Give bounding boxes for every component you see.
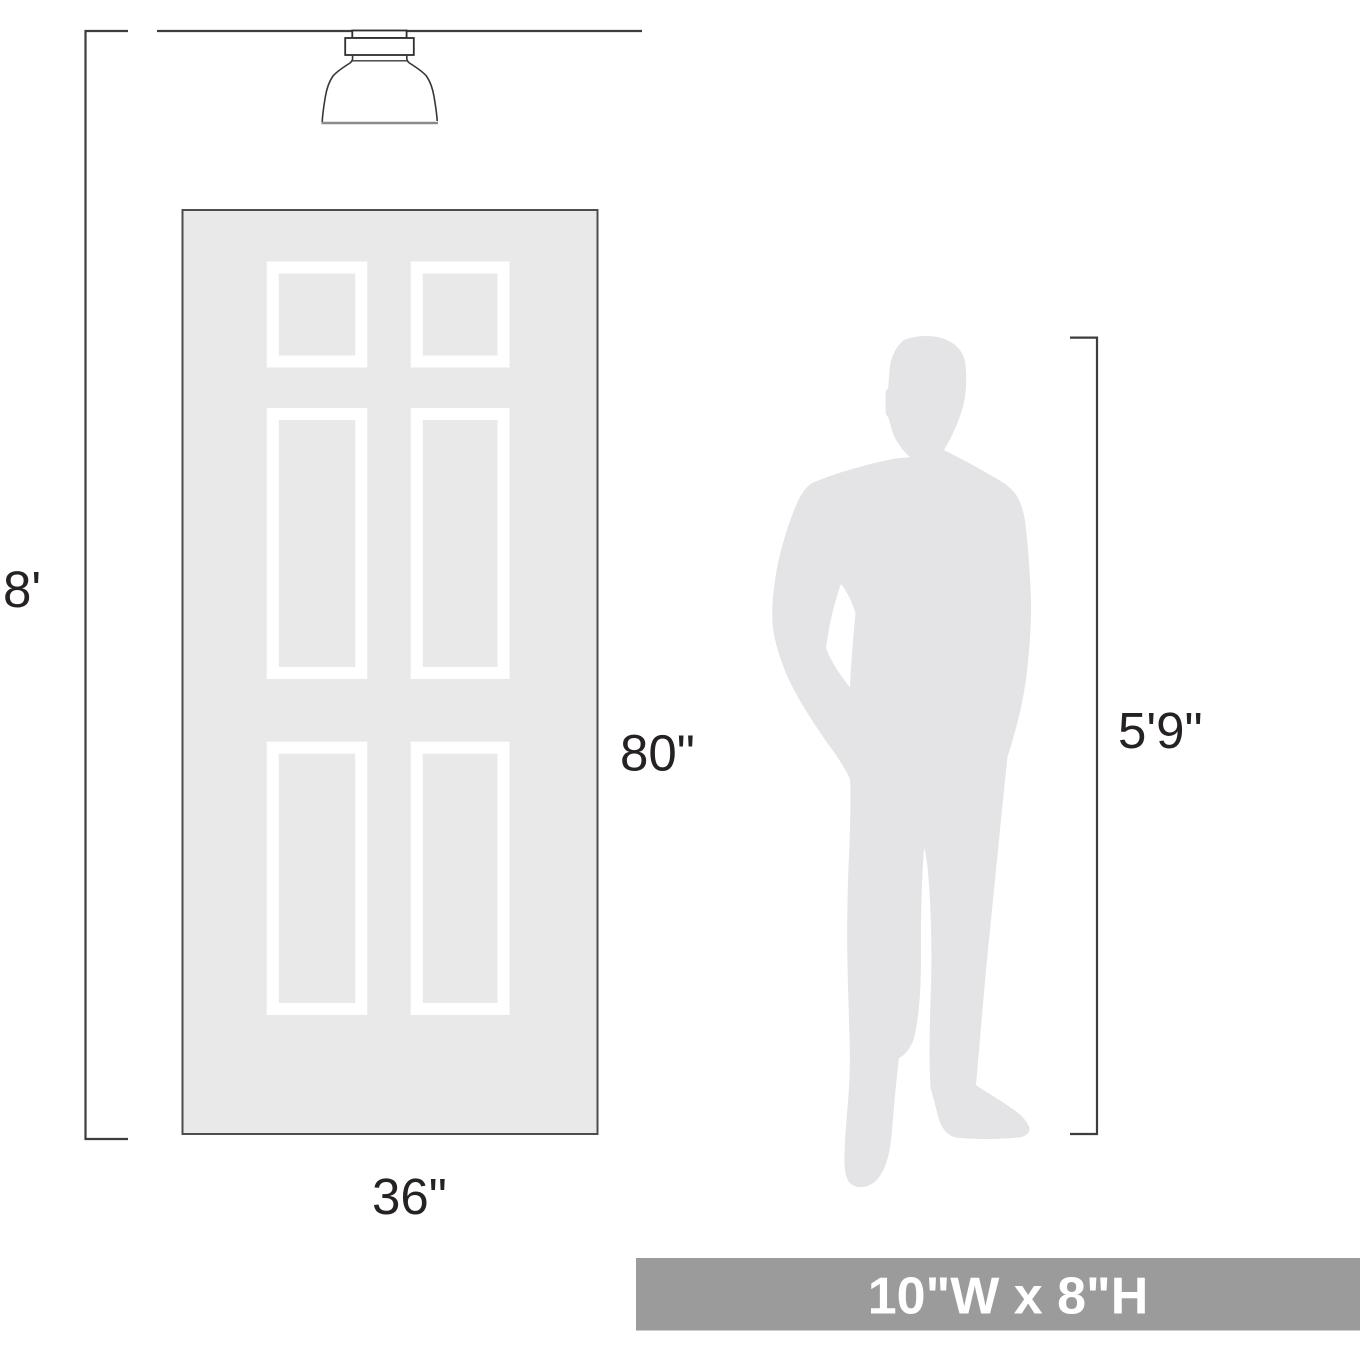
- svg-text:10"W x 8"H: 10"W x 8"H: [868, 1268, 1149, 1326]
- svg-text:80": 80": [620, 725, 695, 782]
- svg-text:5'9": 5'9": [1118, 702, 1203, 759]
- svg-text:36": 36": [372, 1168, 447, 1225]
- svg-text:8': 8': [3, 561, 41, 618]
